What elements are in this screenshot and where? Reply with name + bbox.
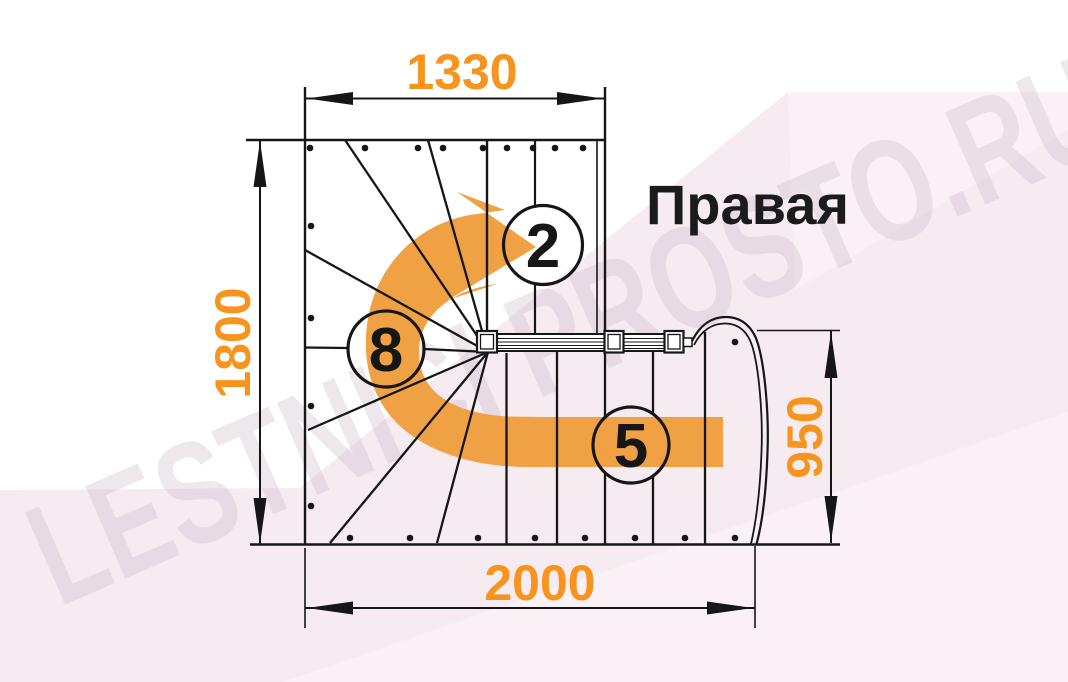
dim-right-value: 950 <box>777 395 833 478</box>
dim-arrowhead <box>307 92 353 105</box>
page-title: Правая <box>646 172 849 237</box>
dimension-top: 1330 <box>305 44 605 105</box>
dim-arrowhead <box>707 602 753 615</box>
handrail-end-tab <box>684 338 693 347</box>
landing-handrail <box>477 331 692 353</box>
dim-arrowhead <box>254 498 267 544</box>
winder-step-count: 8 <box>369 316 403 385</box>
stair-plan-page: LESTNICI PROSTO.RU <box>0 0 1068 682</box>
winder-edge-line <box>305 348 347 349</box>
stair-drawing: 1330 1800 950 2000 2 <box>0 0 1068 682</box>
dim-arrowhead <box>254 141 267 187</box>
lower-step-count: 5 <box>614 412 648 481</box>
stair-outline <box>246 87 840 545</box>
dimension-bottom: 2000 <box>305 546 755 628</box>
dim-arrowhead <box>307 602 353 615</box>
dim-arrowhead <box>557 92 603 105</box>
dim-top-value: 1330 <box>406 44 517 100</box>
dim-bottom-value: 2000 <box>484 555 595 611</box>
dim-arrowhead <box>825 332 838 378</box>
dimension-left: 1800 <box>205 140 267 545</box>
dimension-right: 950 <box>757 331 840 544</box>
dim-arrowhead <box>825 496 838 542</box>
dim-left-value: 1800 <box>205 287 261 398</box>
upper-step-count: 2 <box>526 212 560 281</box>
